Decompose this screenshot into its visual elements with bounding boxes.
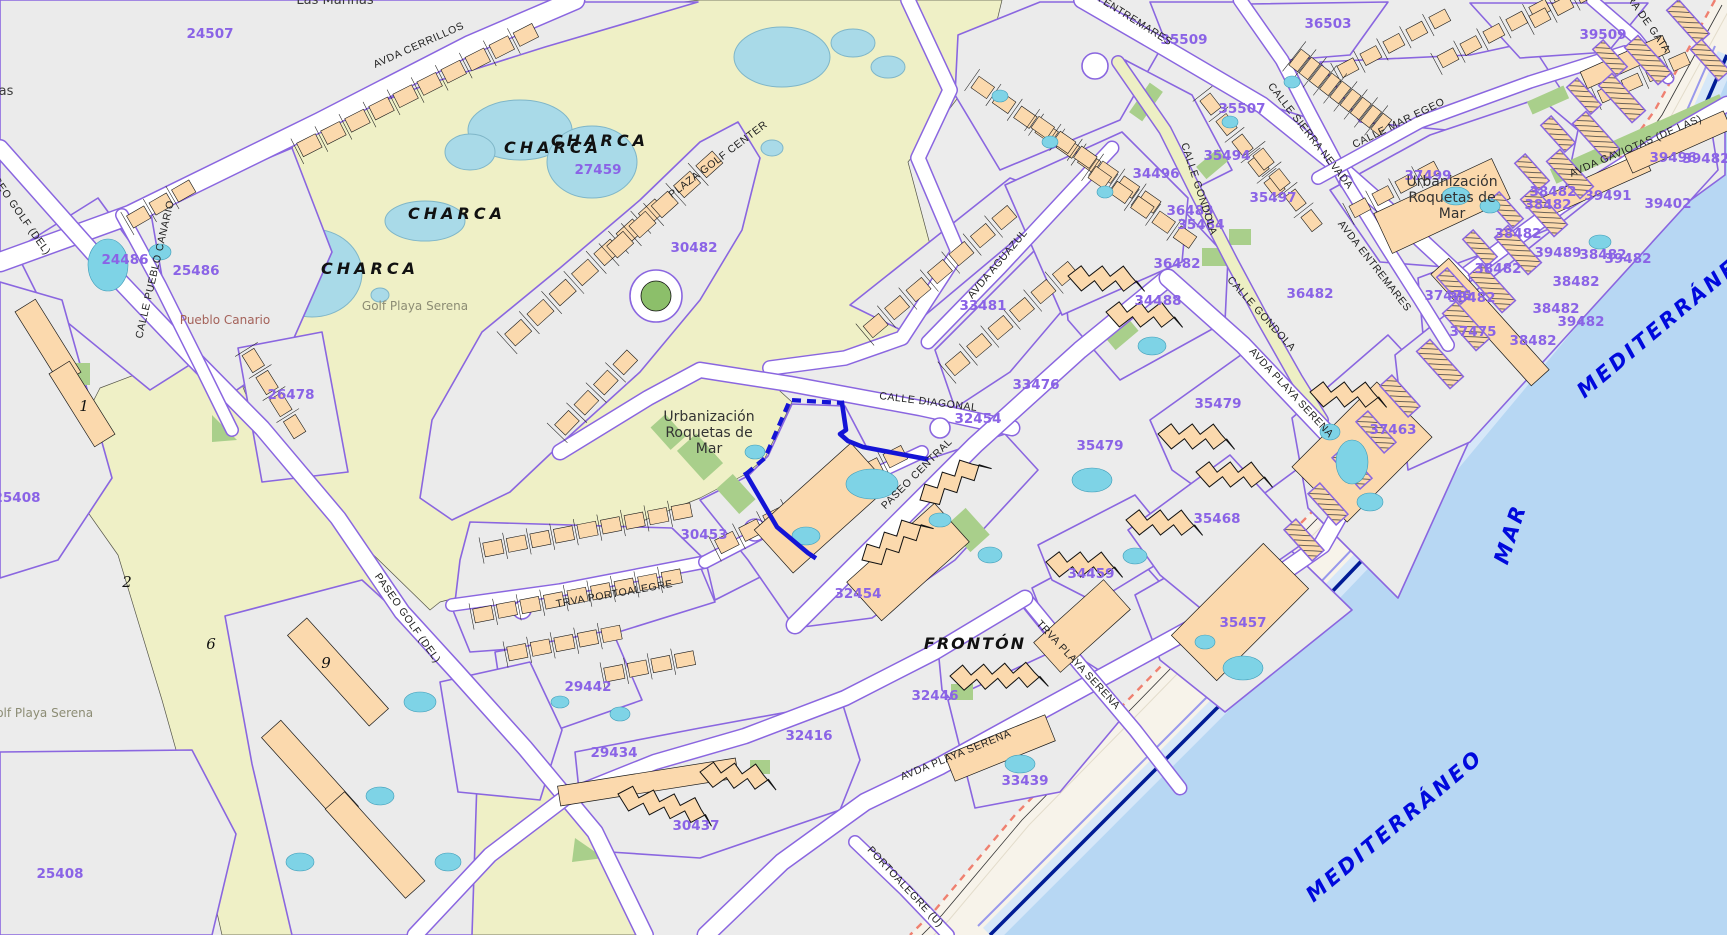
golf-hole-9: 9 <box>321 654 331 672</box>
parcel-label-26478[interactable]: 26478 <box>268 387 315 403</box>
parcel-label-39491[interactable]: 39491 <box>1585 188 1632 204</box>
parcel-label-38482[interactable]: 38482 <box>1510 333 1557 349</box>
parcel-label-38482[interactable]: 38482 <box>1553 274 1600 290</box>
parcel-label-37463[interactable]: 37463 <box>1370 422 1417 438</box>
parcel-label-33481[interactable]: 33481 <box>960 298 1007 314</box>
golf-hole-1: 1 <box>79 397 89 415</box>
parcel-label-36503[interactable]: 36503 <box>1305 16 1352 32</box>
map-canvas[interactable]: 2450724486254862745926478254082540830482… <box>0 0 1727 935</box>
parcel-label-36482[interactable]: 36482 <box>1287 286 1334 302</box>
parcel-label-24486[interactable]: 24486 <box>102 252 149 268</box>
golf-hole-2: 2 <box>121 573 132 591</box>
parcel-label-25486[interactable]: 25486 <box>173 263 220 279</box>
parcel-label-25408[interactable]: 25408 <box>37 866 84 882</box>
parcel-label-35494[interactable]: 35494 <box>1204 148 1251 164</box>
place-label-charca: CHARCA <box>321 259 419 278</box>
place-label-front-n: FRONTÓN <box>924 634 1026 653</box>
place-label-golf-playa-serena: Golf Playa Serena <box>362 299 468 313</box>
parcel-label-32416[interactable]: 32416 <box>786 728 833 744</box>
parcel-label-39402[interactable]: 39402 <box>1645 196 1692 212</box>
place-label-pueblo-canario: Pueblo Canario <box>180 313 270 327</box>
parcel-label-35479[interactable]: 35479 <box>1195 396 1242 412</box>
parcel-label-35468[interactable]: 35468 <box>1194 511 1241 527</box>
parcel-label-29442[interactable]: 29442 <box>565 679 612 695</box>
parcel-label-32446[interactable]: 32446 <box>912 688 959 704</box>
parcel-label-35479[interactable]: 35479 <box>1077 438 1124 454</box>
golf-hole-6: 6 <box>206 635 216 653</box>
parcel-label-25408[interactable]: 25408 <box>0 490 40 506</box>
parcel-label-35457[interactable]: 35457 <box>1220 615 1267 631</box>
parcel-label-32454[interactable]: 32454 <box>955 411 1002 427</box>
parcel-label-35497[interactable]: 35497 <box>1250 190 1297 206</box>
parcel-label-36482[interactable]: 36482 <box>1154 256 1201 272</box>
parcel-label-30453[interactable]: 30453 <box>681 527 728 543</box>
parcel-label-29434[interactable]: 29434 <box>591 745 638 761</box>
parcel-label-27459[interactable]: 27459 <box>575 162 622 178</box>
parcel-label-33476[interactable]: 33476 <box>1013 377 1060 393</box>
parcel-label-38482[interactable]: 38482 <box>1475 261 1522 277</box>
place-label-golf-playa-serena: Golf Playa Serena <box>0 706 93 720</box>
parcel-label-39489[interactable]: 39489 <box>1535 245 1582 261</box>
place-label-charca: CHARCA <box>408 204 506 223</box>
parcel-label-37475[interactable]: 37475 <box>1450 324 1497 340</box>
parcel-label-39482[interactable]: 39482 <box>1683 151 1727 167</box>
place-label-charca: CHARCA <box>504 138 602 157</box>
parcel-label-34496[interactable]: 34496 <box>1133 166 1180 182</box>
parcel-label-30482[interactable]: 30482 <box>671 240 718 256</box>
parcel-label-38482[interactable]: 38482 <box>1495 226 1542 242</box>
parcel-label-33439[interactable]: 33439 <box>1002 773 1049 789</box>
parcel-label-30437[interactable]: 30437 <box>673 818 720 834</box>
place-label-as: as <box>0 84 14 99</box>
parcel-label-32454[interactable]: 32454 <box>835 586 882 602</box>
place-label-las-marinas: Las Marinas <box>296 0 373 8</box>
map-viewport[interactable]: 2450724486254862745926478254082540830482… <box>0 0 1727 935</box>
parcel-label-39482[interactable]: 39482 <box>1558 314 1605 330</box>
parcel-label-35507[interactable]: 35507 <box>1219 101 1266 117</box>
parcel-label-38482[interactable]: 38482 <box>1449 290 1496 306</box>
parcel-label-24507[interactable]: 24507 <box>187 26 234 42</box>
parcel-label-34459[interactable]: 34459 <box>1068 566 1115 582</box>
parcel-label-34488[interactable]: 34488 <box>1135 293 1182 309</box>
parcel-label-39482[interactable]: 39482 <box>1605 251 1652 267</box>
parcel-label-38482[interactable]: 38482 <box>1525 197 1572 213</box>
parcel-label-39509[interactable]: 39509 <box>1580 27 1627 43</box>
